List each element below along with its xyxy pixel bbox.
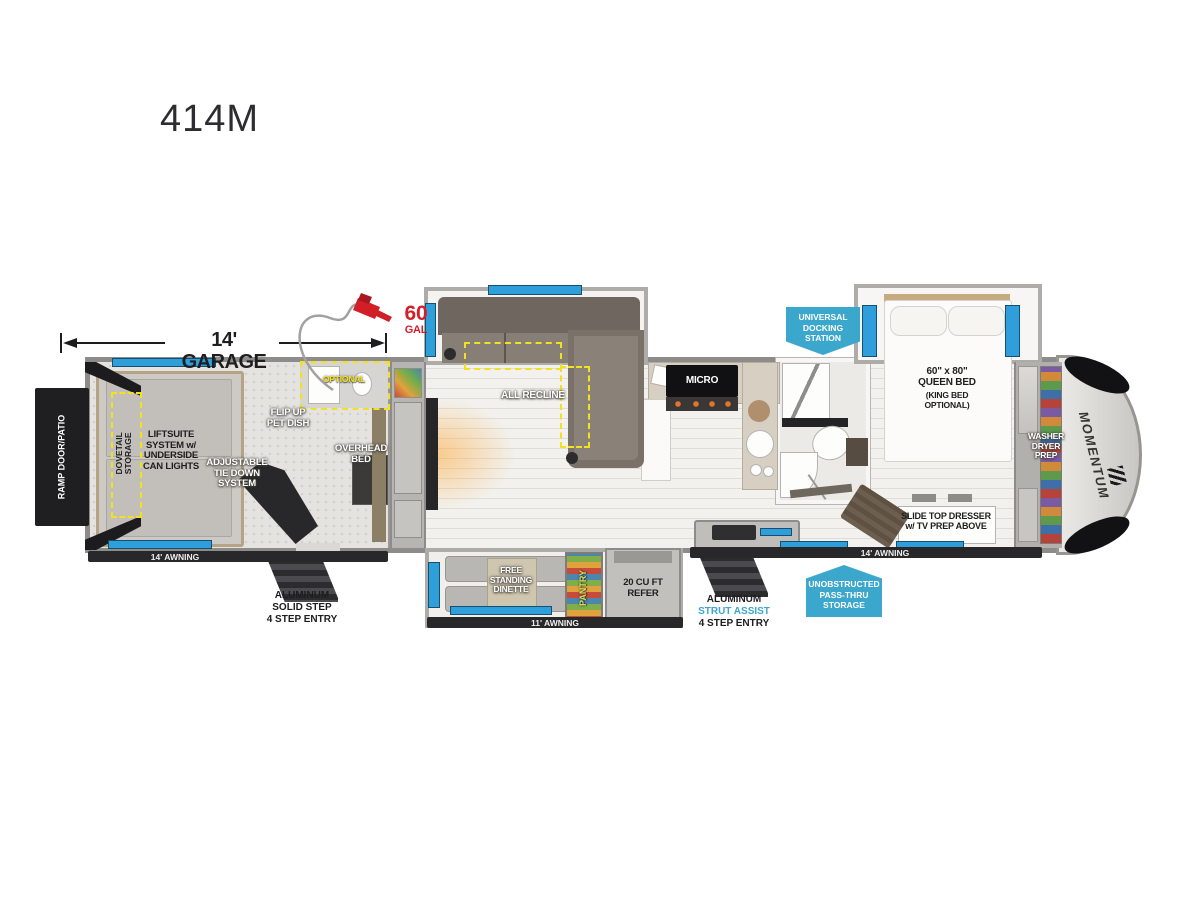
refrigerator-top [614,551,672,563]
ramp-door: RAMP DOOR/PATIO [35,388,89,526]
microwave: MICRO [666,365,738,397]
garage-wall-panel [372,408,386,542]
awning-label-garage: 14' AWNING [130,552,220,562]
dinette-window-left [428,562,440,608]
main-steps-line2: STRUT ASSIST [688,606,780,618]
kitchen-small-bowl-1 [750,464,762,476]
fireplace-glow [436,398,516,510]
bedroom-vent-1 [912,494,936,502]
kitchen-sink [746,430,774,458]
ramp-door-label-wrap: RAMP DOOR/PATIO [35,388,89,526]
sofa-option-outline-1 [464,342,562,370]
bedroom-window-left [862,305,877,357]
floorplan-canvas: 414M 14' GARAGE 60 GAL RAMP DOOR/PATIO D… [0,0,1200,900]
garage-dimension-label: 14' GARAGE [168,329,280,374]
fuel-pump-icon [288,288,403,393]
brand-logo-wrap: MOMENTUM [1064,398,1124,512]
garage-steps-line2: SOLID STEP [252,602,352,614]
pillow-right [948,306,1005,336]
main-steps-line3: 4 STEP ENTRY [688,618,780,630]
garage-window-bottom [108,540,212,549]
wardrobe-cabinet-bottom [1018,488,1038,542]
pillow-left [890,306,947,336]
island-sink [712,525,756,540]
stove [666,397,738,411]
bedroom-window-right [1005,305,1020,357]
dovetail-storage-label: DOVETAIL STORAGE [115,432,134,474]
microwave-label: MICRO [686,375,718,386]
wardrobe-mirror [1018,366,1038,434]
liftsuite-label: LIFTSUITE SYSTEM w/ UNDERSIDE CAN LIGHTS [138,430,204,473]
sofa-corner-dot-right [566,452,578,464]
bed-label: 60" x 80" QUEEN BED [896,366,998,388]
dresser-label: SLIDE TOP DRESSER w/ TV PREP ABOVE [898,511,994,531]
ramp-door-label: RAMP DOOR/PATIO [57,415,67,500]
kitchen-small-bowl-2 [763,466,774,477]
page-title: 414M [160,98,259,141]
entertainment-cabinet-bottom [394,500,422,538]
garage-steps-line3: 4 STEP ENTRY [252,614,352,626]
bed-option-label: (KING BED OPTIONAL) [896,391,998,410]
washer-dryer-label: WASHER DRYER PREP [1024,432,1068,461]
sofa-option-outline-2 [560,366,590,448]
pantry-label-wrap: PANTRY [565,552,603,624]
pantry-label: PANTRY [579,570,589,606]
kitchen-plate [748,400,770,422]
dinette-label: FREE STANDING DINETTE [476,566,546,595]
fireplace [426,398,438,510]
awning-label-main: 14' AWNING [840,548,930,558]
main-steps-line1: ALUMINUM [688,594,780,606]
kitchen-cabinet-left [641,399,671,481]
entertainment-cabinet-mid [394,402,422,494]
dinette-mat [450,606,552,615]
overhead-bed-label: OVERHEAD BED [328,444,394,465]
bathroom-cabinet [846,438,868,466]
sofa-corner-dot-left [444,348,456,360]
pet-dish-label: FLIP UP PET DISH [258,408,318,429]
docking-station-badge: UNIVERSAL DOCKING STATION [786,307,860,355]
pass-thru-storage-badge: UNOBSTRUCTED PASS-THRU STORAGE [806,565,882,617]
garage-steps-label: ALUMINUM SOLID STEP 4 STEP ENTRY [252,590,352,625]
brand-logo-text: MOMENTUM [1076,410,1112,501]
living-slide-window-top [488,285,582,295]
main-steps-label: ALUMINUM STRUT ASSIST 4 STEP ENTRY [688,594,780,629]
awning-label-dinette: 11' AWNING [510,618,600,628]
island-mat [760,528,792,536]
bedroom-vent-2 [948,494,972,502]
tie-down-label: ADJUSTABLE TIE DOWN SYSTEM [204,458,270,490]
garage-steps-line1: ALUMINUM [252,590,352,602]
shower [782,363,830,419]
sofa-label: ALL RECLINE [478,390,588,401]
refrigerator-label: 20 CU FT REFER [608,578,678,599]
